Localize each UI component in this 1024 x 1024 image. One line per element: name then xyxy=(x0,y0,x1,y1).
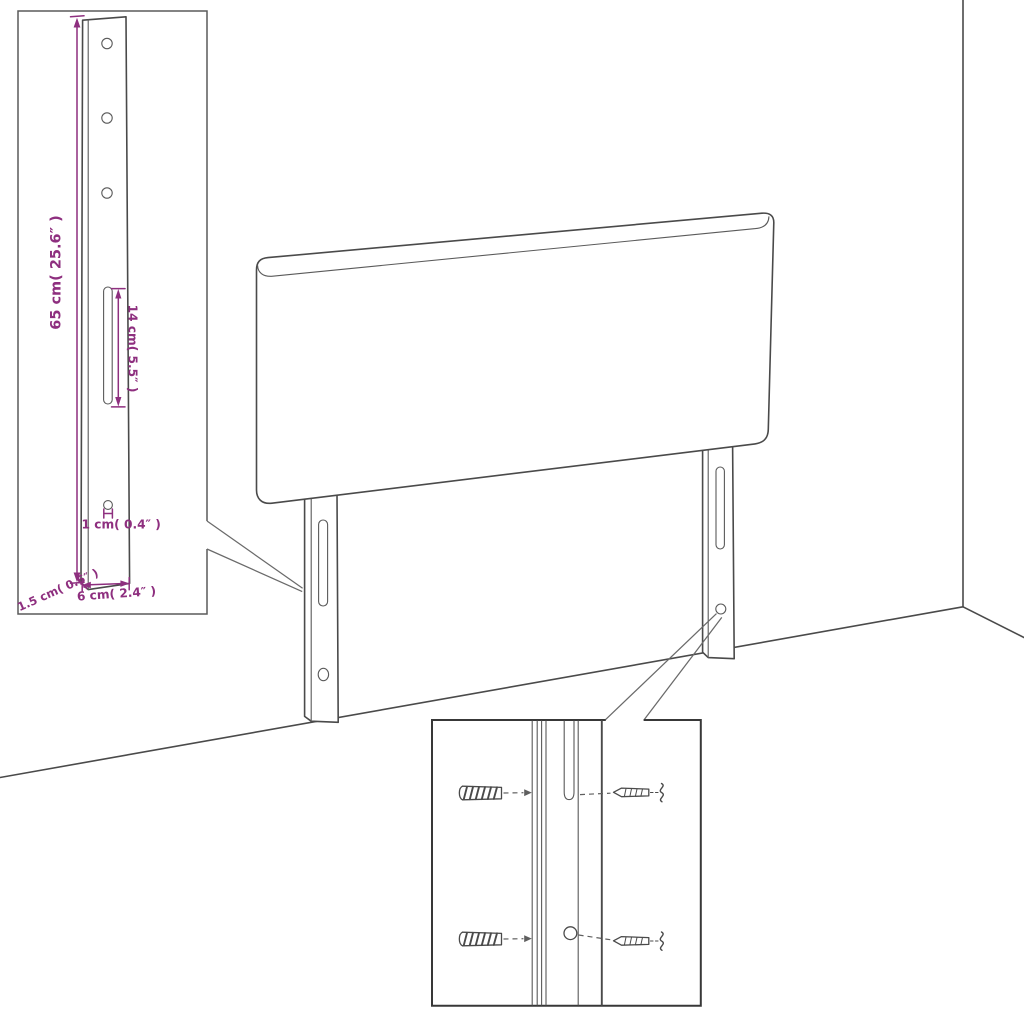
headboard xyxy=(257,213,774,722)
arrow-up-icon xyxy=(74,18,81,28)
leg-left-body xyxy=(305,492,339,722)
dimension-height: 65 cm( 25.6″ ) xyxy=(49,16,85,583)
diagram-canvas: 65 cm( 25.6″ ) 14 cm( 5.5″ ) 1 cm( 0.4″ … xyxy=(0,0,1024,1024)
dimension-hole-label: 1 cm( 0.4″ ) xyxy=(82,518,161,532)
mount-box-border xyxy=(432,720,701,1006)
inset-leader-line-upper xyxy=(207,521,303,588)
inset-leg-drawing xyxy=(81,17,130,590)
inset-leader-line-lower xyxy=(207,549,302,592)
floor-line-right xyxy=(963,607,1024,638)
headboard-dimension-diagram: 65 cm( 25.6″ ) 14 cm( 5.5″ ) 1 cm( 0.4″ … xyxy=(0,0,1024,1024)
headboard-leg-left xyxy=(305,492,339,722)
headboard-panel xyxy=(257,213,774,503)
leg-right-body xyxy=(703,444,735,659)
headboard-leg-right xyxy=(703,444,735,659)
dimension-slot-label: 14 cm( 5.5″ ) xyxy=(126,305,140,393)
mount-leader-line-right xyxy=(644,617,722,719)
dimension-height-label: 65 cm( 25.6″ ) xyxy=(49,215,65,330)
mounting-detail-inset xyxy=(432,614,722,1006)
